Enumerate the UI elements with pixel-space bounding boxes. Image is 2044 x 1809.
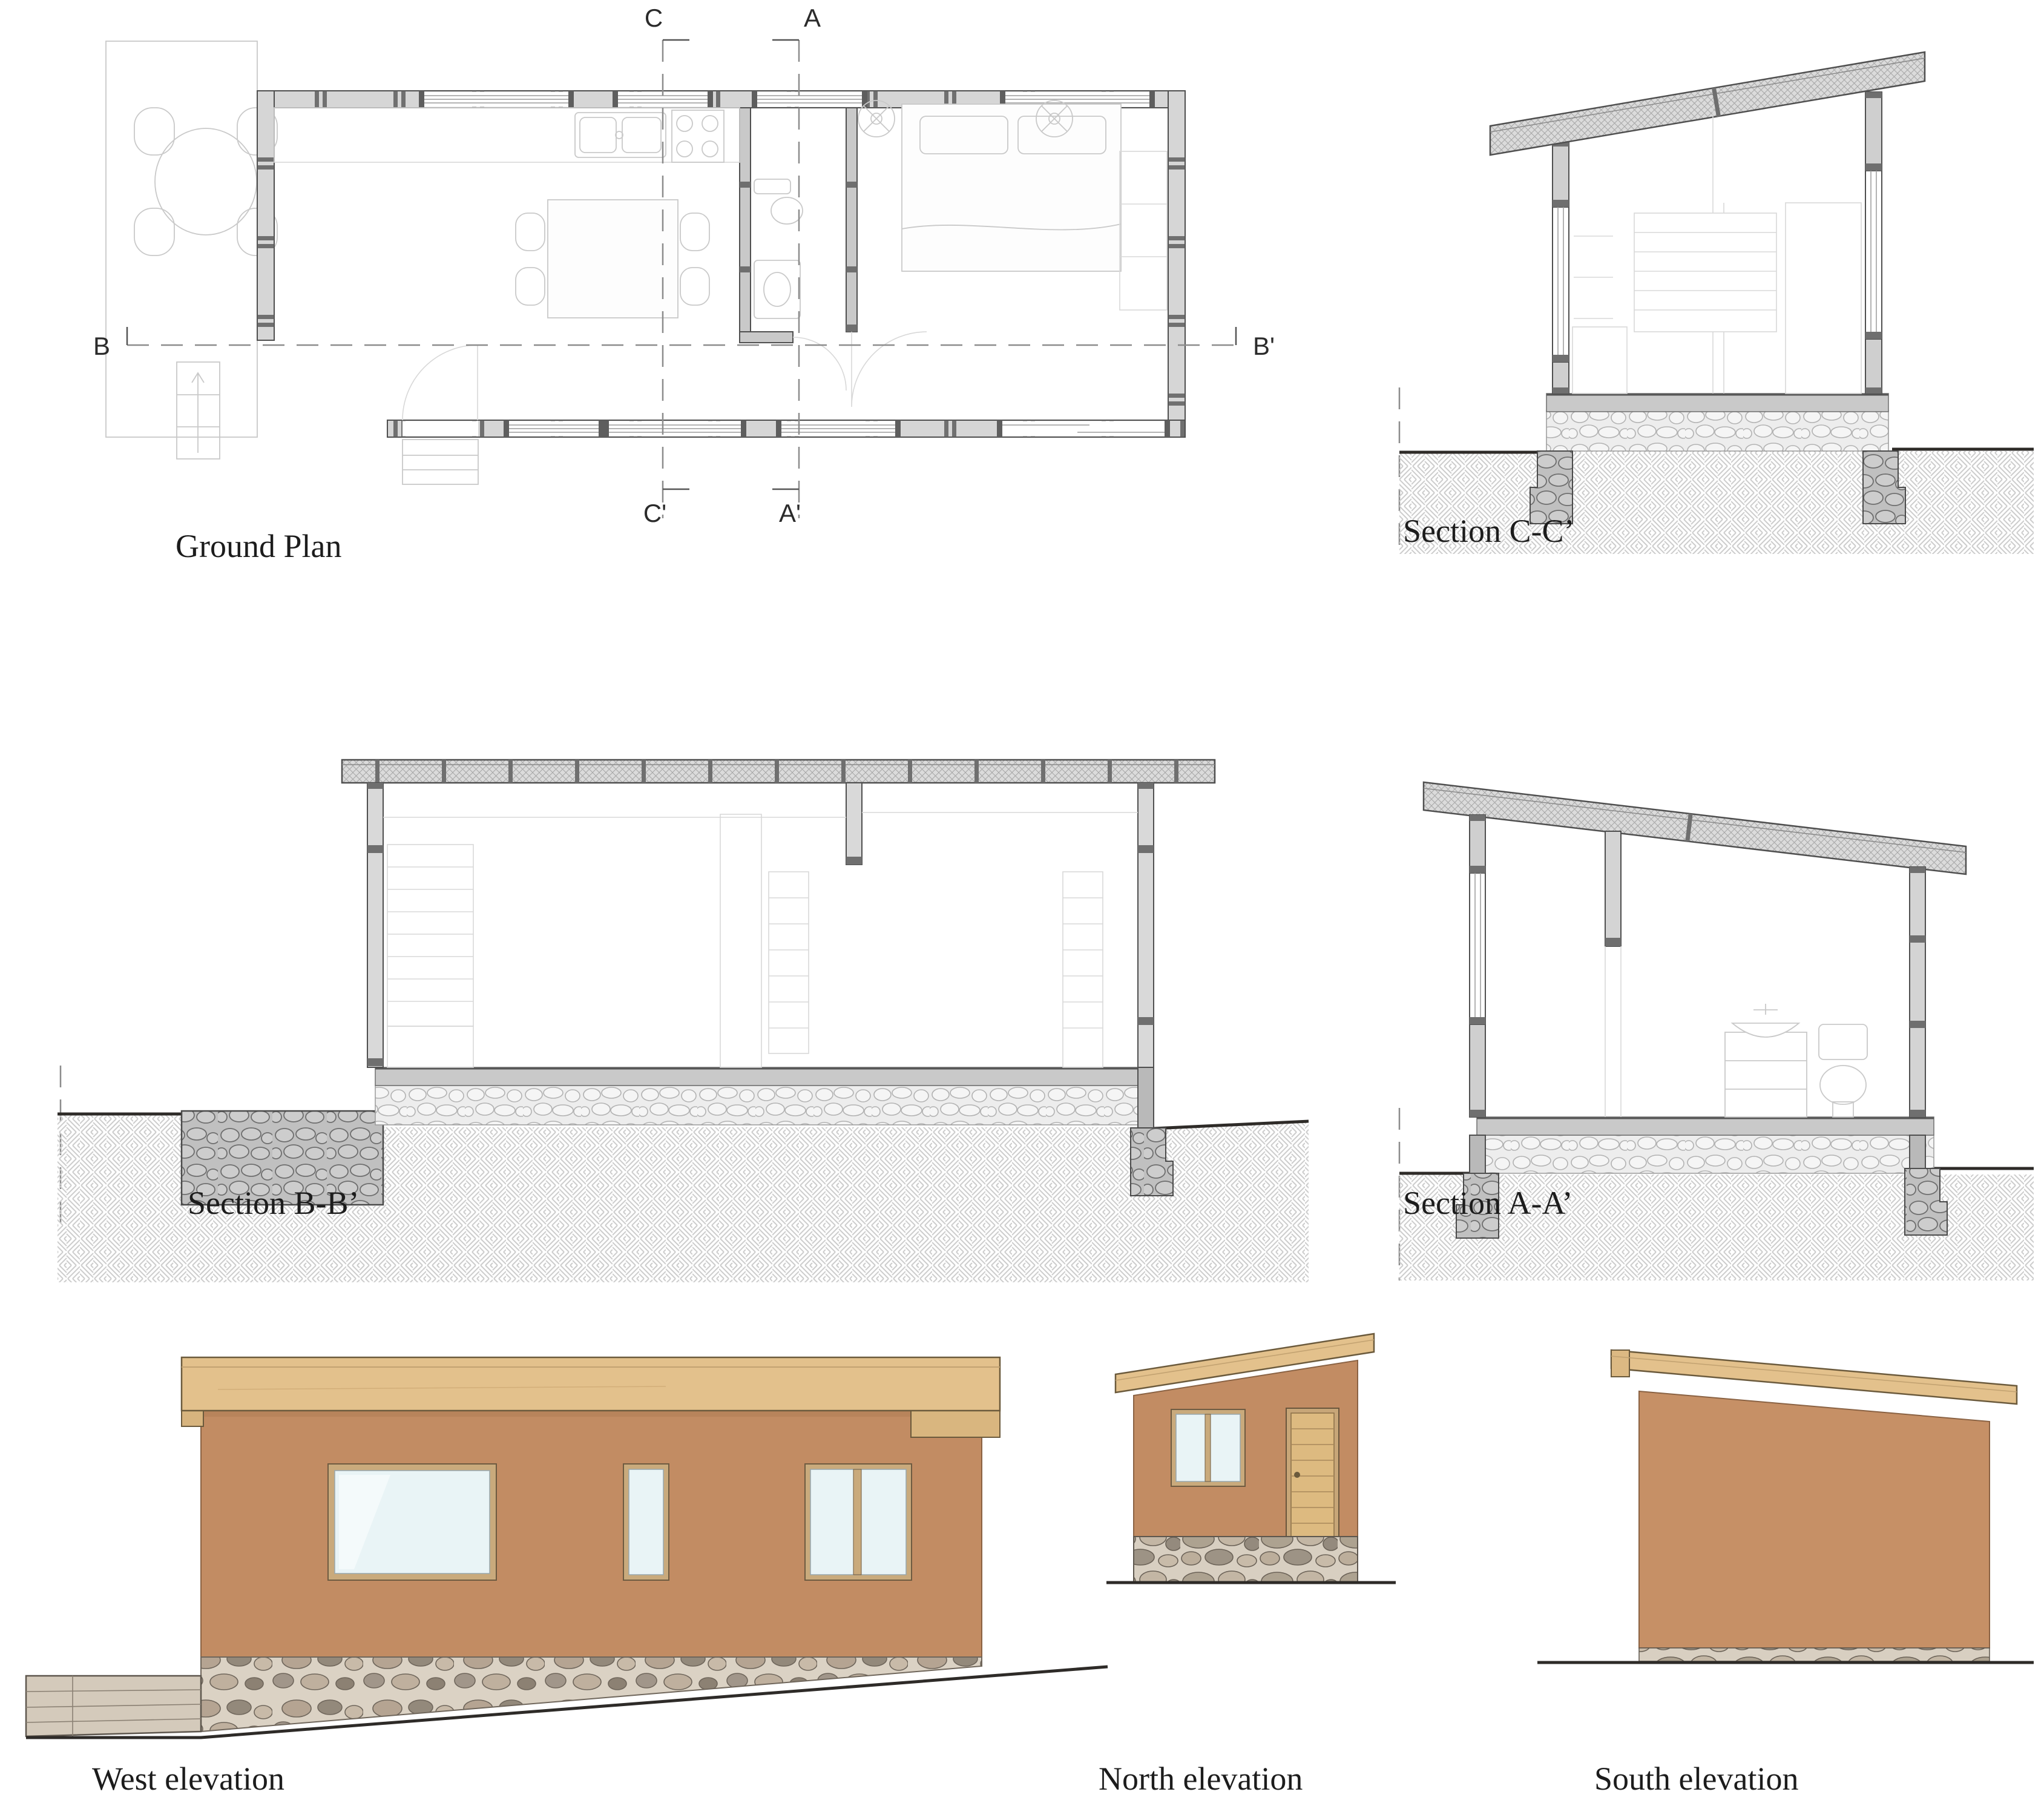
south-elevation-panel: South elevation	[1537, 1350, 2034, 1797]
entry-door-swing	[403, 345, 478, 420]
west-elevation-label: West elevation	[92, 1761, 284, 1797]
section-aa-label: Section A-A’	[1403, 1185, 1572, 1221]
door-handle	[1294, 1472, 1300, 1478]
window-large	[328, 1464, 496, 1580]
north-elevation-panel: North elevation	[1099, 1334, 1396, 1797]
roof-beam-end	[1611, 1350, 1629, 1377]
wardrobe	[1120, 151, 1167, 310]
bathroom-wall-right	[846, 108, 857, 332]
interior-lines	[1572, 106, 1861, 394]
section-bb-panel: Section B-B’	[58, 760, 1309, 1282]
floor-slab	[375, 1067, 1146, 1086]
stone-plinth	[201, 1657, 982, 1732]
west-elevation-panel: West elevation	[26, 1357, 1108, 1797]
bed	[902, 104, 1121, 271]
ground-plan-panel: C A B B' C' A' Ground Plan	[93, 4, 1275, 564]
floor-slab	[1546, 394, 1888, 412]
marker-a-prime: A'	[779, 499, 801, 527]
entry-steps	[177, 362, 220, 459]
wall-cut-middle	[846, 783, 862, 865]
stone-retaining-wall	[26, 1676, 201, 1736]
dining-table	[516, 200, 709, 318]
stone-plinth	[1134, 1537, 1358, 1582]
marker-b-prime: B'	[1253, 332, 1275, 360]
stone-subfloor	[375, 1086, 1146, 1125]
wall-cut-middle	[1605, 831, 1621, 1117]
marker-a: A	[804, 4, 821, 32]
wall-cut-left	[1553, 140, 1569, 394]
bathroom-fixtures	[1725, 1004, 1867, 1117]
wall-cut-left	[1470, 815, 1485, 1117]
stone-plinth	[1639, 1648, 1990, 1661]
bathroom-fixtures	[754, 179, 803, 318]
roof-slab	[342, 760, 1215, 783]
window-double	[1171, 1409, 1245, 1486]
window-narrow	[623, 1464, 669, 1580]
bedroom-door-swing	[852, 332, 927, 407]
floor-slab	[1477, 1117, 1934, 1135]
window-double	[805, 1464, 912, 1580]
stone-subfloor	[1546, 410, 1888, 451]
marker-c: C	[645, 4, 663, 32]
wall-cut-right	[1865, 92, 1882, 394]
kitchen	[274, 108, 740, 162]
section-aa-panel: Section A-A’	[1399, 782, 2034, 1280]
bathroom-wall-stub	[740, 332, 793, 343]
bathroom-wall-left	[740, 108, 751, 343]
interior-lines	[383, 812, 1138, 1067]
patio-table-and-chairs	[134, 108, 277, 255]
adobe-wall	[1639, 1391, 1990, 1648]
entry-door	[1286, 1408, 1339, 1537]
wall-cut-right	[1910, 867, 1925, 1117]
marker-b: B	[93, 332, 110, 360]
patio-outline	[106, 41, 257, 437]
section-cc-label: Section C-C’	[1403, 513, 1574, 549]
ground-plan-label: Ground Plan	[176, 528, 341, 564]
exterior-stoop	[403, 440, 478, 484]
drawing-sheet: C A B B' C' A' Ground Plan	[0, 0, 2044, 1809]
roof-slab	[1490, 52, 1925, 155]
section-cc-panel: Section C-C’	[1399, 52, 2034, 557]
north-elevation-label: North elevation	[1099, 1761, 1303, 1797]
section-bb-label: Section B-B’	[188, 1185, 359, 1221]
wall-cut-left	[367, 783, 383, 1067]
marker-c-prime: C'	[643, 499, 666, 527]
roof-slab	[1424, 782, 1966, 874]
stone-subfloor	[1477, 1135, 1934, 1173]
south-elevation-label: South elevation	[1594, 1761, 1798, 1797]
door-opening	[403, 421, 478, 437]
